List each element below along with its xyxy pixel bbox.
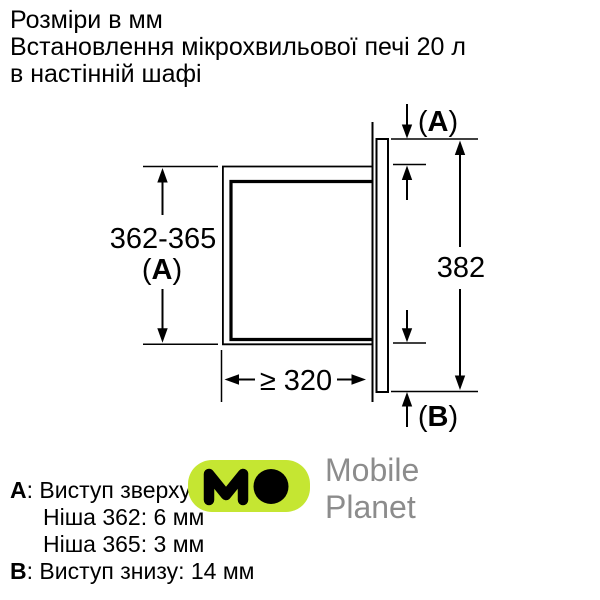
arrowhead-down (157, 328, 167, 343)
legend-item-niche-362: Ніша 362: 6 мм (43, 504, 204, 531)
arrowhead-left (225, 374, 240, 384)
dim-niche-depth: ≥ 320 (225, 365, 367, 397)
brand-name: Mobile Planet (325, 452, 419, 525)
microwave-front-panel (377, 139, 389, 392)
arrowhead-up (157, 168, 167, 183)
arrowhead-up (402, 166, 412, 181)
arrowhead-up (402, 392, 412, 407)
bottom-protrusion-label: (B) (418, 401, 458, 433)
arrowhead-down (455, 376, 465, 391)
legend-text-b: : Виступ знизу: 14 мм (27, 558, 255, 584)
legend-item-a: A: Виступ зверху: (10, 477, 197, 504)
extension-lines (143, 139, 478, 402)
arrowhead-down (402, 328, 412, 342)
dim-niche-height: 362-365 (A) (110, 168, 216, 343)
dim-bottom-protrusion: (B) (402, 310, 458, 433)
dim-top-protrusion: (A) (402, 104, 458, 200)
front-height-label: 382 (437, 252, 485, 284)
niche-depth-label: ≥ 320 (260, 365, 332, 397)
logo-dot-icon (254, 469, 289, 504)
legend-item-b: B: Виступ знизу: 14 мм (10, 558, 255, 585)
arrowhead-right (352, 374, 367, 384)
brand-line-planet: Planet (325, 489, 416, 525)
arrowhead-down (402, 125, 412, 139)
arrowhead-up (455, 141, 465, 156)
legend-item-niche-365: Ніша 365: 3 мм (43, 531, 204, 558)
niche-height-ref-label: (A) (142, 254, 182, 286)
cabinet-outline-outer (223, 167, 372, 345)
dim-front-height: 382 (437, 141, 485, 391)
cabinet-outline (223, 122, 373, 402)
product-installation-image: { "title": { "lines": [ "Розміри в мм", … (0, 0, 600, 600)
legend-text-a: : Виступ зверху: (27, 477, 198, 503)
top-protrusion-label: (A) (418, 106, 458, 138)
legend-key-b: B (10, 558, 27, 584)
legend-key-a: A (10, 477, 27, 503)
niche-height-label: 362-365 (110, 223, 216, 255)
brand-line-mobile: Mobile (325, 452, 419, 488)
mobile-planet-watermark: Mobile Planet (185, 445, 430, 535)
cabinet-outline-inner (231, 182, 372, 340)
